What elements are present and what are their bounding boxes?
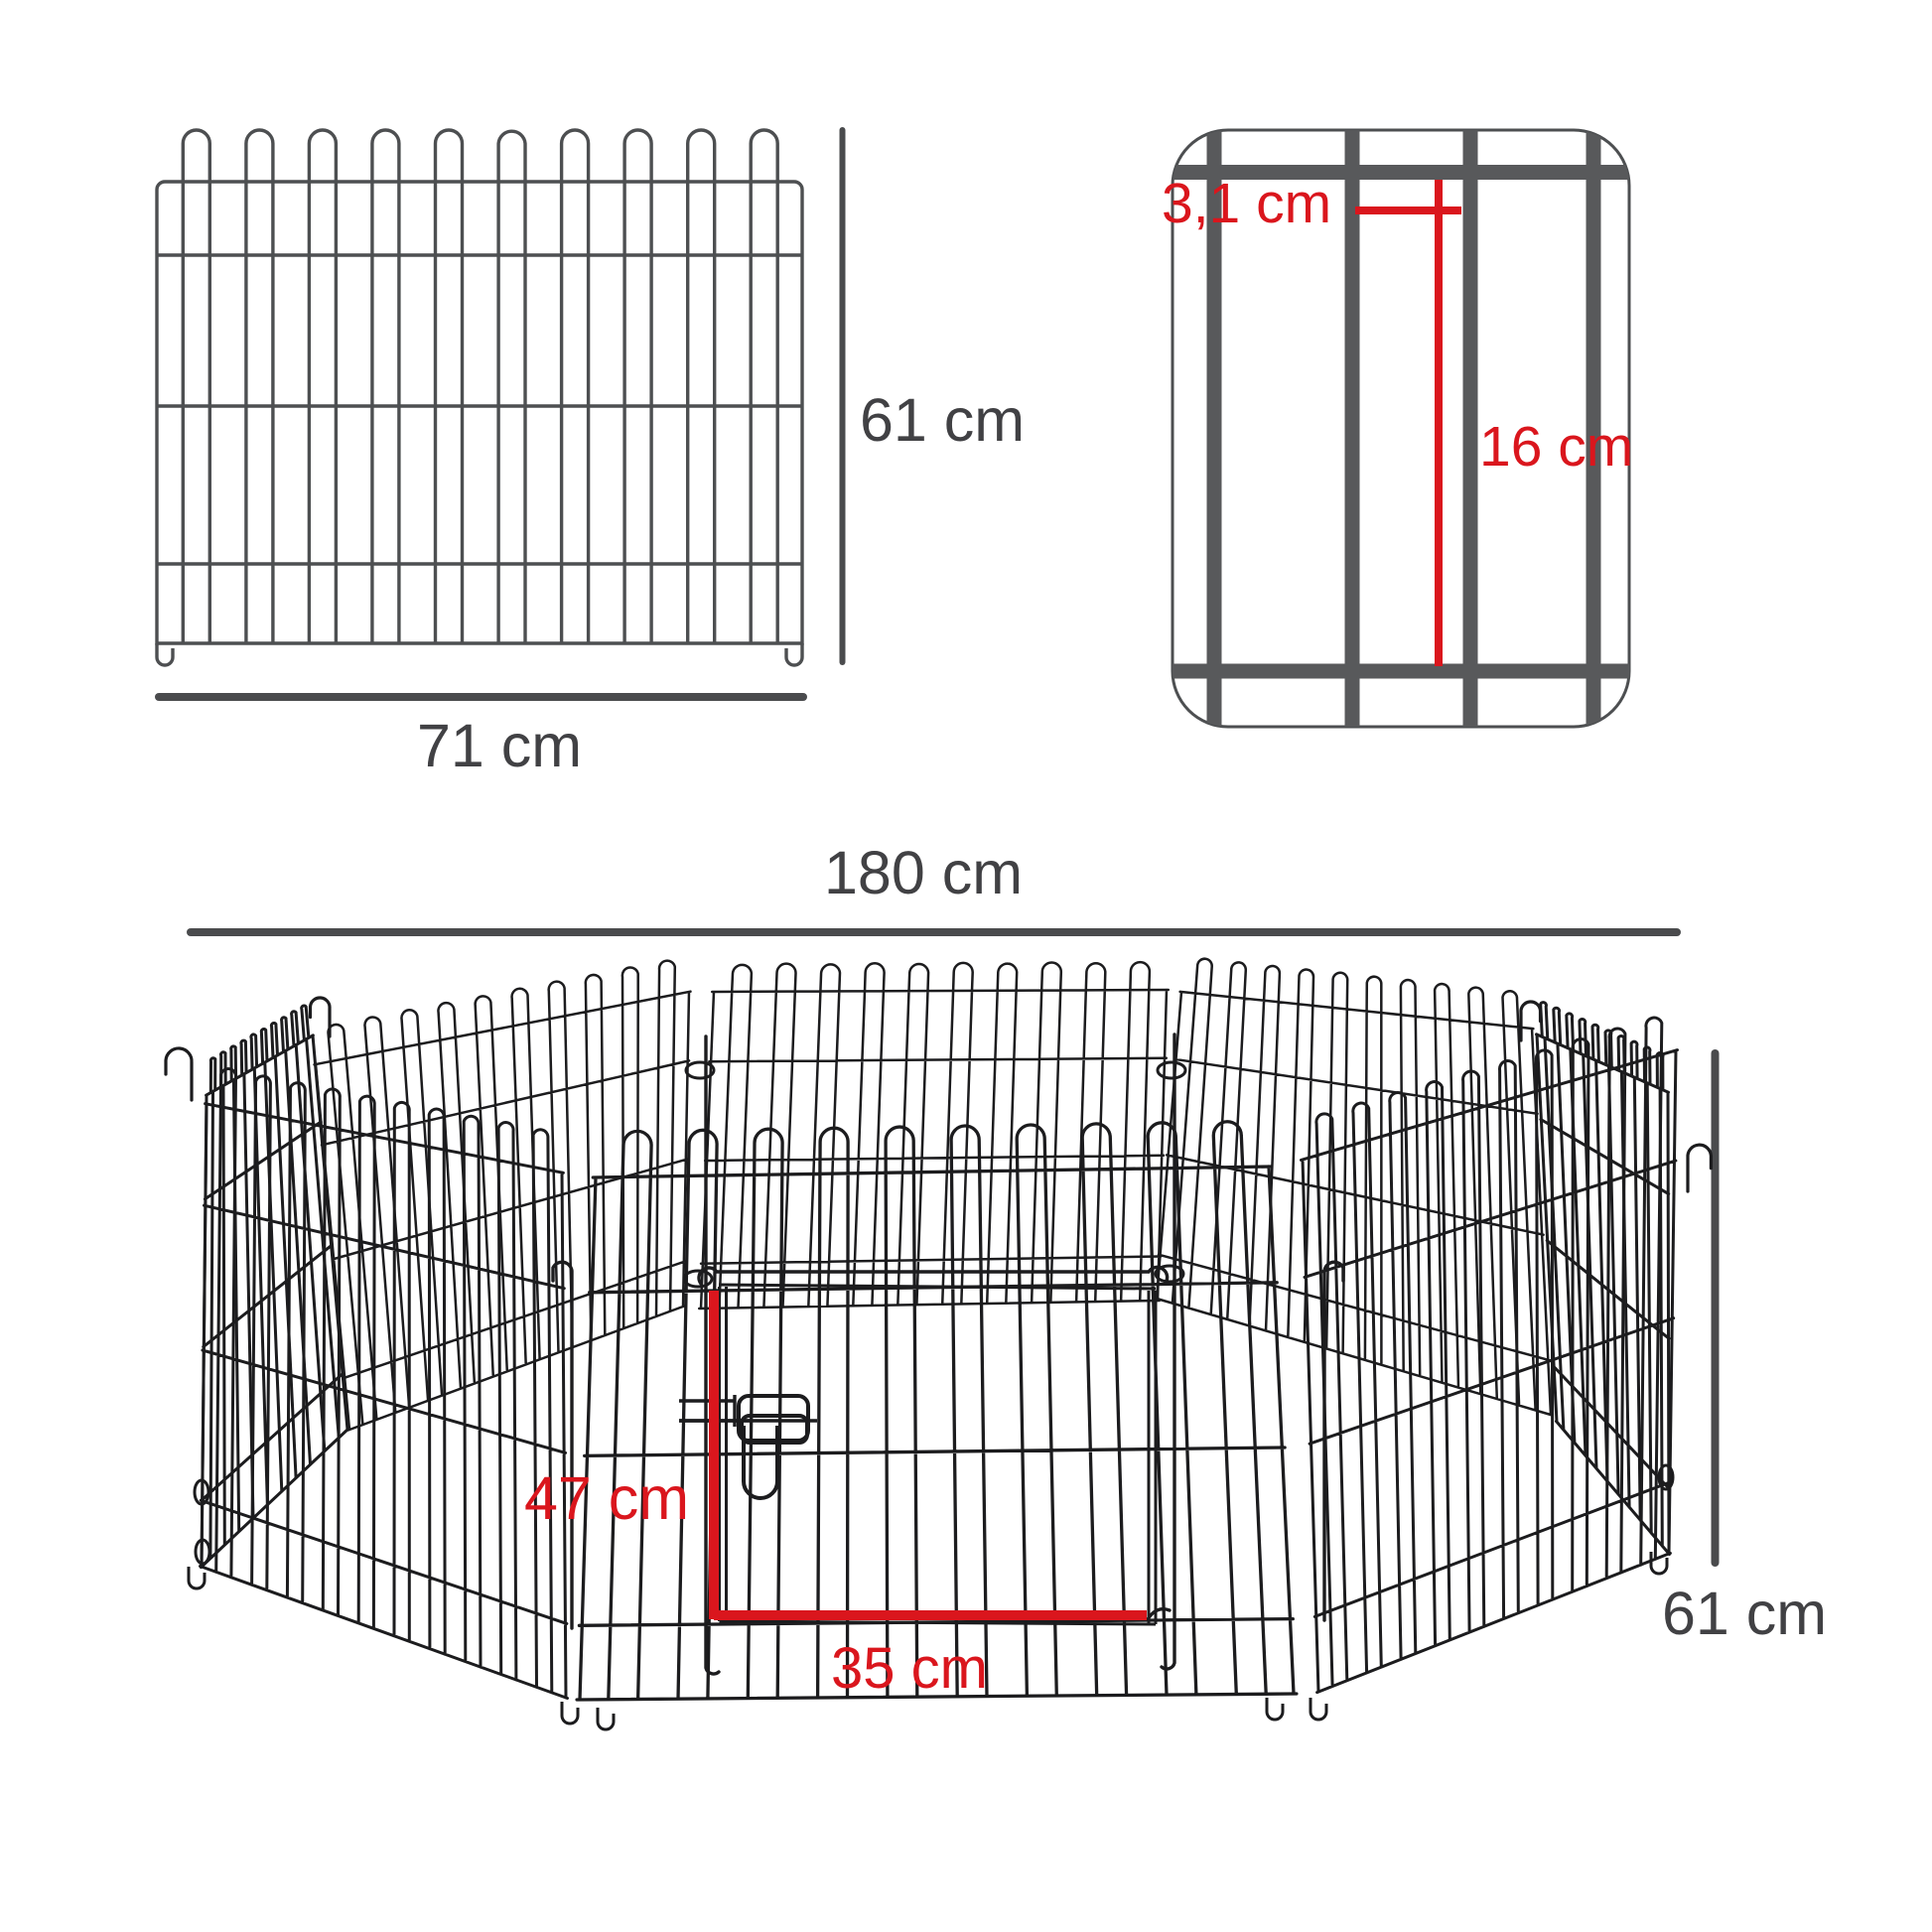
svg-text:61 cm: 61 cm [860,386,1025,454]
svg-text:3,1 cm: 3,1 cm [1162,172,1331,235]
svg-text:71 cm: 71 cm [417,712,582,779]
svg-text:180 cm: 180 cm [824,839,1023,906]
svg-text:16 cm: 16 cm [1479,415,1633,479]
svg-text:61 cm: 61 cm [1662,1580,1827,1647]
svg-text:35 cm: 35 cm [831,1636,988,1701]
svg-text:47 cm: 47 cm [524,1464,689,1532]
